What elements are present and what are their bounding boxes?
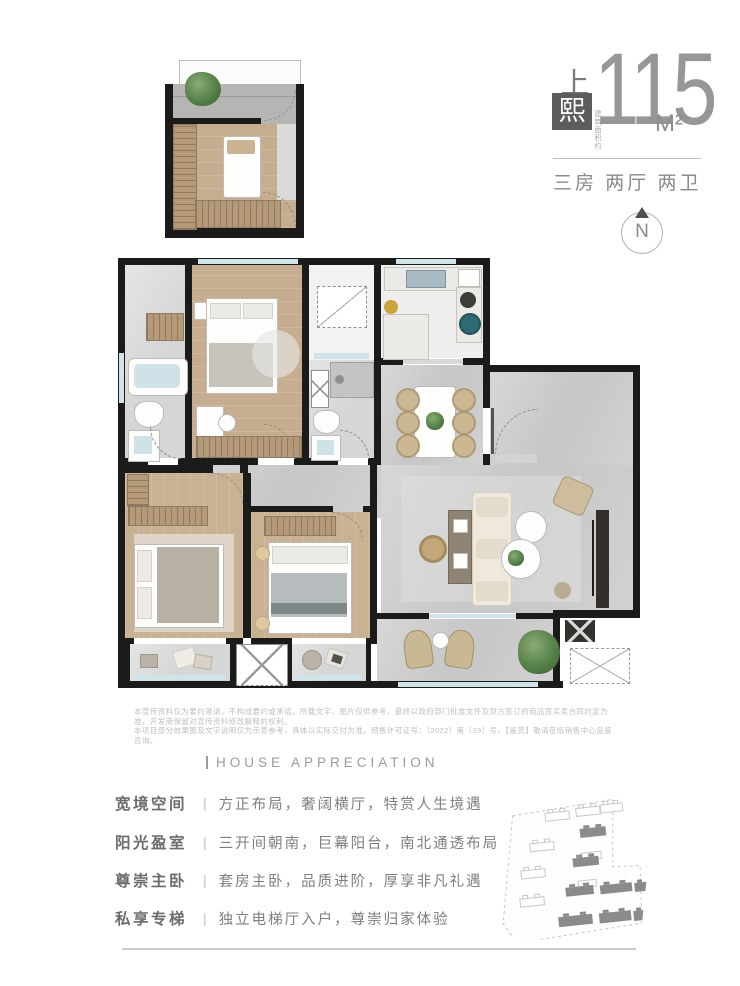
feature-desc: 方正布局，奢阔横厅，特赏人生境遇 bbox=[219, 793, 483, 814]
desk-chair bbox=[218, 414, 236, 432]
feature-separator: | bbox=[203, 834, 207, 850]
toilet bbox=[134, 401, 164, 428]
feature-desc: 三开间朝南，巨幕阳台，南北通透布局 bbox=[219, 832, 500, 853]
wall-segment bbox=[251, 506, 333, 512]
wardrobe bbox=[127, 474, 149, 506]
wall-segment bbox=[302, 265, 309, 458]
plant bbox=[185, 72, 221, 106]
feature-title: 私享专梯 bbox=[115, 907, 203, 929]
coffee-table bbox=[501, 539, 541, 579]
detached-room bbox=[165, 60, 312, 238]
pouf bbox=[554, 582, 571, 599]
dining-chair bbox=[396, 411, 420, 435]
rect bbox=[532, 840, 537, 844]
feature-title: 尊崇主卧 bbox=[115, 869, 203, 891]
feature-desc: 独立电梯厅入户，尊崇归家体验 bbox=[219, 908, 450, 929]
balcony-plant bbox=[518, 630, 560, 674]
compass-label: N bbox=[622, 221, 662, 243]
section-heading: HOUSE APPRECIATION bbox=[206, 755, 439, 770]
wall-segment bbox=[294, 458, 309, 465]
feature-title: 宽境空间 bbox=[115, 792, 203, 814]
rect bbox=[560, 808, 565, 812]
wall-segment bbox=[192, 458, 258, 465]
appliance bbox=[458, 269, 480, 287]
dining-chair bbox=[452, 434, 476, 458]
rect bbox=[583, 882, 589, 886]
heading-bar bbox=[206, 756, 208, 769]
plant bbox=[508, 550, 524, 566]
fw bbox=[453, 519, 468, 533]
bay-pillow bbox=[193, 654, 213, 671]
private-elevator-hall bbox=[570, 648, 630, 684]
rect bbox=[618, 908, 624, 912]
wall-segment bbox=[125, 644, 130, 681]
window bbox=[396, 259, 456, 264]
shape bbox=[137, 587, 152, 619]
feature-title: 阳光盈室 bbox=[115, 831, 203, 853]
feature-separator: | bbox=[203, 872, 207, 888]
tile-floor bbox=[277, 124, 296, 200]
shape bbox=[157, 547, 219, 623]
feature-row: 宽境空间 | 方正布局，奢阔横厅，特赏人生境遇 bbox=[115, 792, 535, 814]
rect bbox=[544, 839, 549, 843]
rect bbox=[534, 894, 539, 898]
shaft bbox=[311, 370, 329, 408]
rect bbox=[548, 810, 553, 814]
wall-segment bbox=[370, 465, 377, 638]
bowl bbox=[384, 300, 398, 314]
disclaimer-line-2: 本项目部分效果图及文字说明仅为示意参考，具体以实际交付为准。预售许可证号：〔20… bbox=[134, 726, 614, 745]
shape bbox=[134, 436, 152, 454]
feature-row: 尊崇主卧 | 套房主卧，品质进阶，厚享非凡礼遇 bbox=[115, 869, 535, 891]
dining-chair bbox=[452, 388, 476, 412]
shape bbox=[476, 497, 508, 517]
entry-door-leaf bbox=[491, 408, 494, 454]
kitchen-island bbox=[383, 314, 429, 360]
site-plan bbox=[480, 774, 656, 950]
bath-shelf bbox=[146, 313, 184, 341]
wall-segment bbox=[125, 465, 213, 473]
stove bbox=[460, 292, 476, 308]
rect bbox=[523, 895, 528, 899]
wall-segment bbox=[366, 644, 371, 681]
header-divider bbox=[553, 158, 701, 159]
rect bbox=[569, 884, 575, 888]
rect bbox=[563, 913, 569, 917]
bay-tray bbox=[140, 654, 158, 668]
feature-separator: | bbox=[203, 795, 207, 811]
bathtub bbox=[128, 358, 188, 396]
disclaimer-line-1: 本宣传资料仅为要约邀请，不构成要约或承诺，所载文字、图片仅供参考，最终以政府部门… bbox=[134, 707, 614, 726]
shape bbox=[227, 140, 255, 154]
rect bbox=[535, 866, 540, 870]
shape bbox=[271, 603, 347, 614]
shape bbox=[335, 375, 344, 384]
wall-segment bbox=[296, 84, 304, 238]
wall-segment bbox=[240, 465, 248, 473]
wall-segment bbox=[118, 258, 125, 688]
wall-segment bbox=[165, 84, 173, 238]
rect bbox=[637, 879, 642, 883]
wardrobe bbox=[173, 124, 197, 230]
unit-specs: 三房 两厅 两卫 bbox=[553, 168, 713, 195]
feature-separator: | bbox=[203, 910, 207, 926]
lamp-stool bbox=[255, 546, 270, 561]
shape bbox=[272, 546, 348, 564]
wall-segment bbox=[178, 458, 192, 465]
rect bbox=[636, 907, 641, 911]
rect bbox=[590, 803, 595, 807]
bottom-divider bbox=[122, 948, 636, 950]
dining-chair bbox=[396, 388, 420, 412]
fw bbox=[453, 553, 468, 569]
wall-segment bbox=[483, 454, 490, 465]
threshold bbox=[495, 454, 537, 463]
wall-segment bbox=[374, 258, 381, 465]
bay-table bbox=[302, 650, 322, 670]
shape bbox=[317, 440, 334, 455]
shaft-dark bbox=[565, 620, 595, 642]
wardrobe bbox=[264, 516, 336, 536]
north-compass: N bbox=[621, 212, 663, 254]
feature-row: 私享专梯 | 独立电梯厅入户，尊崇归家体验 bbox=[115, 907, 535, 929]
wall-segment bbox=[483, 365, 640, 372]
wall-segment bbox=[368, 458, 381, 465]
rect bbox=[634, 881, 651, 892]
rect bbox=[633, 910, 648, 921]
shape bbox=[476, 581, 508, 601]
tv-console bbox=[596, 510, 609, 608]
feature-row: 阳光盈室 | 三开间朝南，巨幕阳台，南北通透布局 bbox=[115, 831, 535, 853]
site-plan-sketch bbox=[480, 774, 656, 950]
table-plant bbox=[426, 412, 444, 430]
brand-logo-box: 熙 bbox=[552, 93, 592, 130]
rect bbox=[602, 909, 608, 913]
rect bbox=[588, 853, 594, 857]
dining-chair bbox=[452, 411, 476, 435]
area-unit: M² bbox=[655, 110, 683, 138]
shape bbox=[571, 649, 629, 683]
toilet bbox=[313, 410, 340, 434]
window bbox=[314, 353, 369, 359]
rect bbox=[613, 800, 618, 804]
balcony-table bbox=[432, 632, 449, 649]
feature-desc: 套房主卧，品质进阶，厚享非凡礼遇 bbox=[219, 870, 483, 891]
lamp-stool bbox=[255, 616, 270, 631]
window bbox=[429, 614, 516, 618]
rect bbox=[578, 805, 583, 809]
wall-segment bbox=[553, 610, 640, 618]
window bbox=[119, 353, 124, 403]
wardrobe bbox=[128, 506, 208, 526]
console-table bbox=[448, 510, 472, 584]
rect bbox=[603, 881, 609, 885]
shape bbox=[318, 287, 366, 327]
wall-segment bbox=[483, 372, 490, 408]
pot bbox=[459, 313, 481, 335]
shape bbox=[243, 303, 273, 319]
wall-segment bbox=[516, 613, 560, 619]
rect bbox=[523, 867, 528, 871]
wall-segment bbox=[463, 358, 483, 365]
wall-segment bbox=[483, 258, 490, 372]
kitchen-sink bbox=[406, 270, 446, 288]
rect bbox=[580, 911, 586, 915]
wall-segment bbox=[633, 365, 640, 618]
rect bbox=[576, 854, 582, 858]
vanity-sink bbox=[311, 435, 341, 461]
ac-outdoor-unit bbox=[236, 644, 288, 686]
window bbox=[398, 682, 538, 687]
rattan-stool bbox=[419, 535, 447, 563]
tv bbox=[592, 520, 594, 596]
wall-segment bbox=[243, 473, 251, 638]
ac-unit-dashed bbox=[317, 286, 367, 328]
rug bbox=[252, 330, 300, 378]
daybed bbox=[223, 136, 261, 198]
master-bed bbox=[134, 544, 224, 628]
window bbox=[296, 675, 362, 680]
shape bbox=[137, 550, 152, 582]
page: 上 熙 建筑面积约 115 M² 三房 两厅 两卫 N bbox=[0, 0, 740, 986]
window bbox=[198, 259, 298, 264]
section-heading-text: HOUSE APPRECIATION bbox=[216, 755, 439, 770]
wall-segment bbox=[377, 613, 429, 619]
window bbox=[134, 675, 226, 680]
rect bbox=[603, 801, 608, 805]
rect bbox=[583, 825, 589, 829]
bed bbox=[268, 542, 352, 634]
shower bbox=[330, 362, 374, 398]
floor-plan bbox=[118, 258, 640, 688]
shape bbox=[210, 303, 241, 319]
rect bbox=[595, 824, 601, 828]
dining-chair bbox=[396, 434, 420, 458]
compass-needle-icon bbox=[635, 207, 649, 218]
disclaimer: 本宣传资料仅为要约邀请，不构成要约或承诺，所载文字、图片仅供参考，最终以政府部门… bbox=[134, 707, 614, 745]
rect bbox=[619, 880, 625, 884]
shape bbox=[134, 364, 180, 388]
